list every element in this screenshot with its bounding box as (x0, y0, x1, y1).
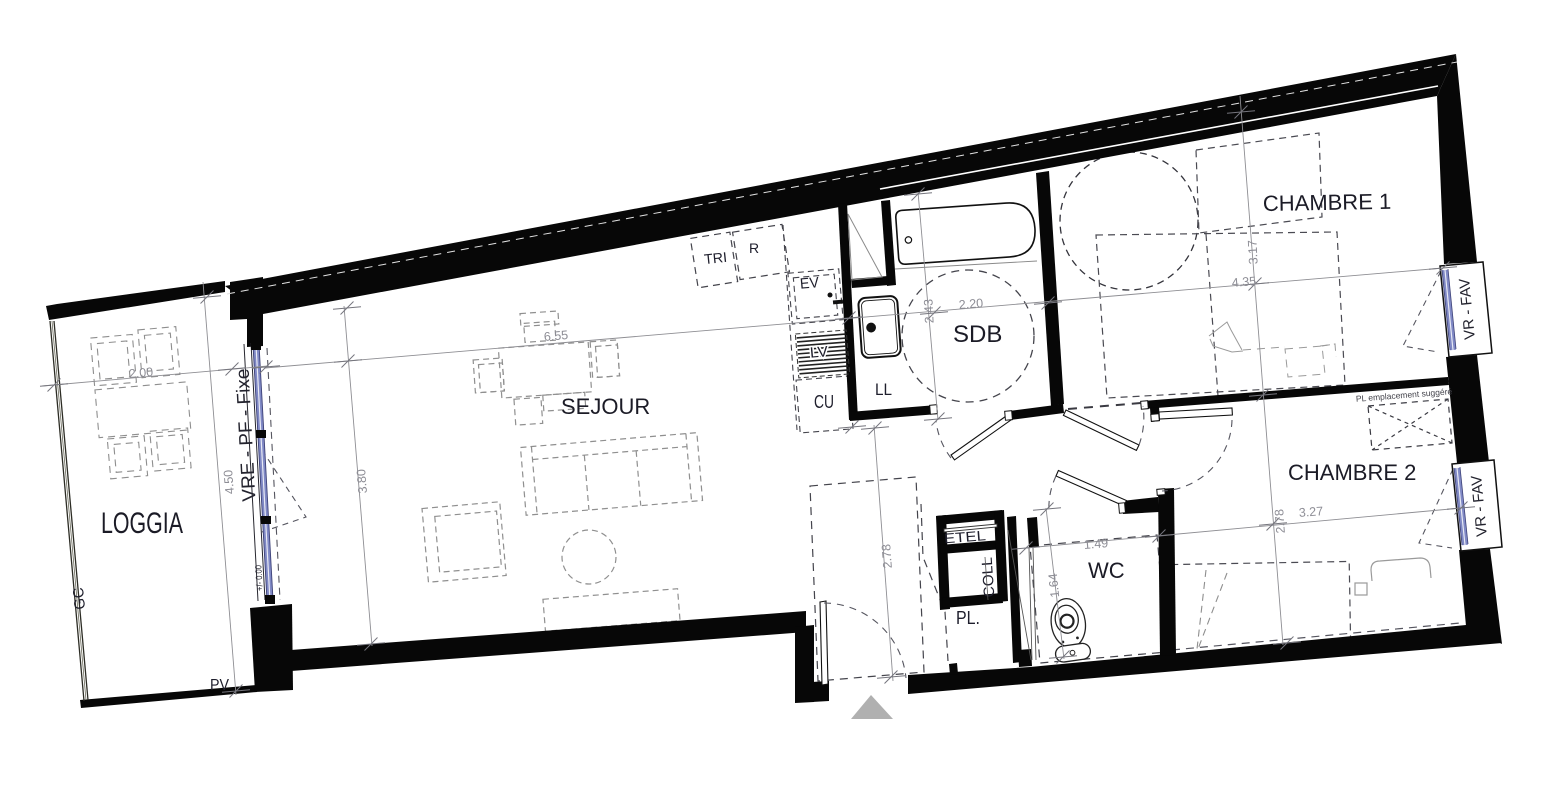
svg-text:ETEL: ETEL (943, 527, 986, 546)
svg-text:2.00: 2.00 (128, 365, 154, 381)
svg-text:1.49: 1.49 (1083, 536, 1108, 552)
svg-text:CU: CU (814, 392, 834, 412)
svg-text:CHAMBRE 1: CHAMBRE 1 (1263, 189, 1392, 216)
svg-text:PL.: PL. (956, 608, 980, 628)
svg-text:3.27: 3.27 (1298, 504, 1323, 520)
svg-text:PV: PV (210, 677, 229, 694)
svg-text:LOGGIA: LOGGIA (101, 507, 183, 540)
svg-text:+/- 0.00: +/- 0.00 (253, 565, 264, 591)
svg-text:1.64: 1.64 (1046, 573, 1062, 599)
svg-text:GC: GC (70, 586, 89, 610)
svg-text:WC: WC (1088, 558, 1125, 583)
svg-text:TRI: TRI (703, 249, 728, 267)
svg-text:2.78: 2.78 (1272, 509, 1288, 534)
svg-text:COLL: COLL (979, 557, 999, 598)
svg-text:2.78: 2.78 (879, 544, 895, 569)
svg-text:LV: LV (809, 343, 828, 362)
svg-text:4.50: 4.50 (221, 469, 237, 494)
svg-text:SDB: SDB (953, 321, 1002, 348)
svg-text:R: R (749, 240, 759, 256)
svg-text:LL: LL (875, 380, 892, 399)
svg-text:CHAMBRE 2: CHAMBRE 2 (1288, 460, 1416, 485)
svg-text:2.20: 2.20 (958, 296, 983, 312)
svg-text:6.55: 6.55 (543, 328, 569, 344)
svg-text:3.17: 3.17 (1245, 240, 1260, 265)
svg-text:SEJOUR: SEJOUR (561, 394, 650, 419)
svg-text:4.35: 4.35 (1231, 274, 1256, 290)
svg-text:3.80: 3.80 (354, 469, 370, 494)
svg-text:2.43: 2.43 (921, 299, 936, 324)
svg-text:EV: EV (799, 274, 819, 293)
